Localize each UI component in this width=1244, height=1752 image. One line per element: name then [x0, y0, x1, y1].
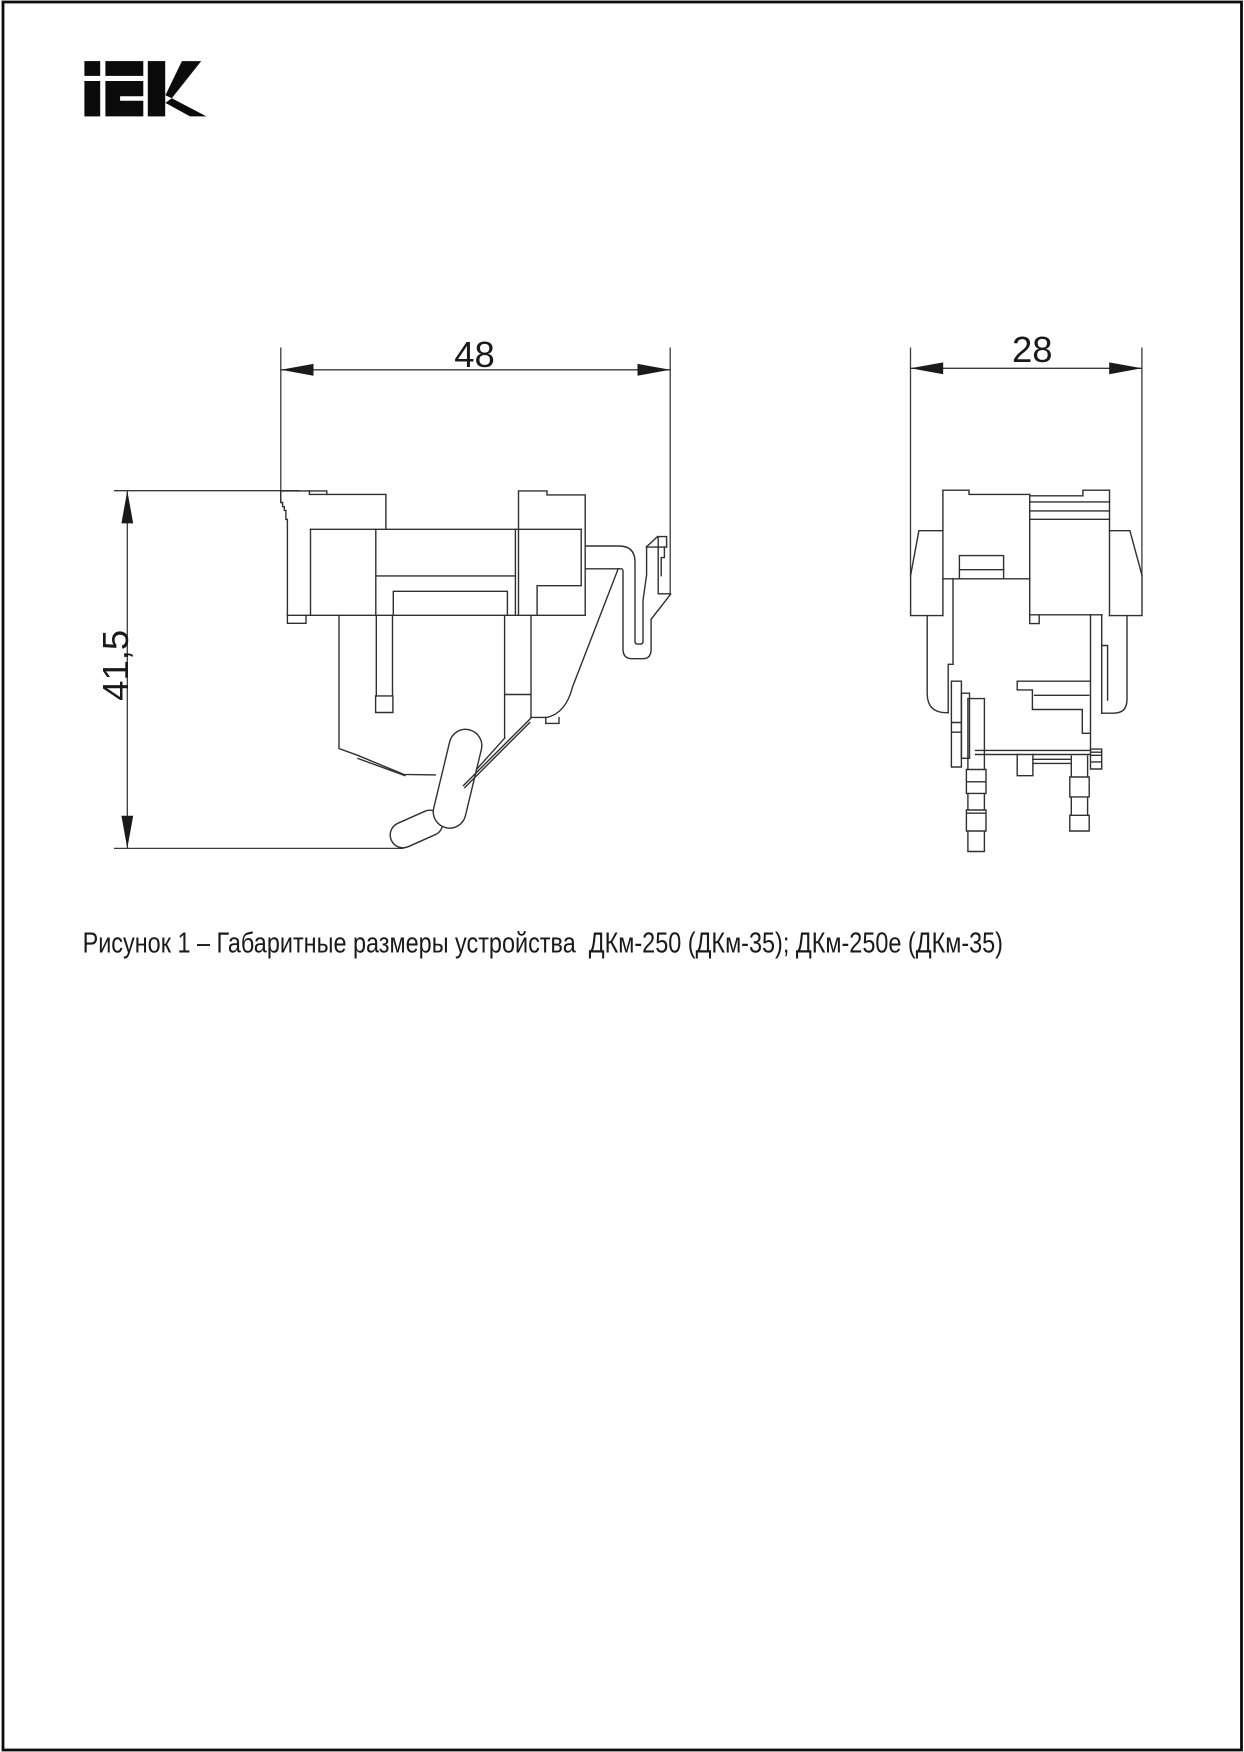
- svg-text:41,5: 41,5: [95, 630, 136, 701]
- svg-text:48: 48: [454, 334, 495, 375]
- svg-text:Рисунок 1 – Габаритные размеры: Рисунок 1 – Габаритные размеры устройств…: [83, 928, 1003, 960]
- svg-text:28: 28: [1012, 329, 1053, 370]
